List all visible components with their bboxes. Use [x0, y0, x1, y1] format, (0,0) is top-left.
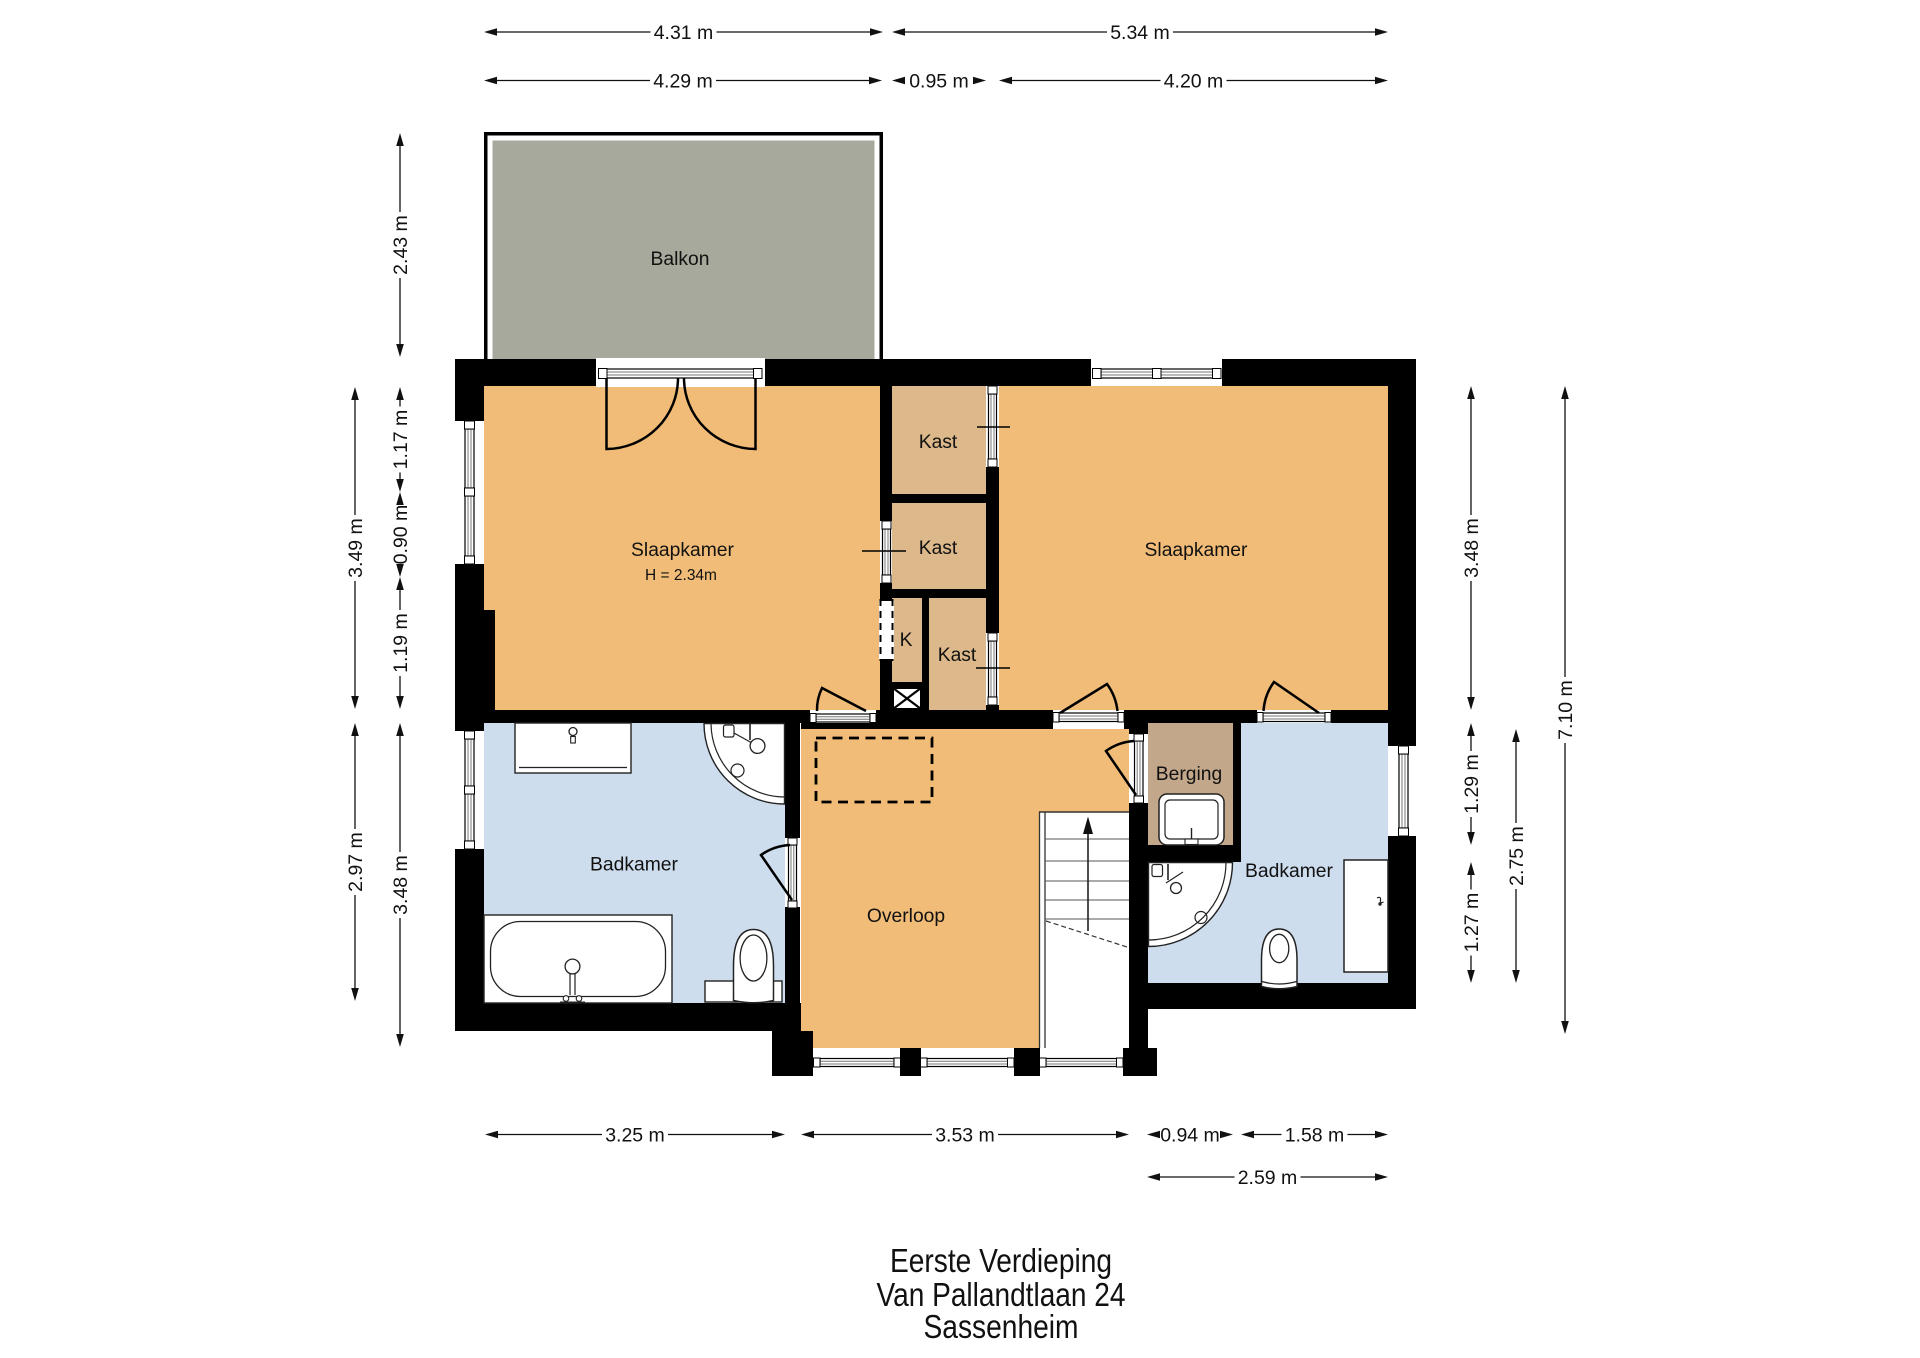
svg-text:2.43 m: 2.43 m [390, 215, 412, 275]
svg-text:3.53 m: 3.53 m [935, 1125, 995, 1147]
svg-text:Kast: Kast [919, 538, 958, 559]
svg-text:0.90 m: 0.90 m [390, 505, 412, 565]
svg-text:1.27 m: 1.27 m [1461, 893, 1483, 953]
svg-text:Balkon: Balkon [651, 249, 710, 270]
svg-text:Sassenheim: Sassenheim [924, 1308, 1079, 1345]
svg-text:1.58 m: 1.58 m [1285, 1125, 1345, 1147]
svg-text:0.94 m: 0.94 m [1160, 1125, 1220, 1147]
svg-text:Kast: Kast [938, 645, 977, 666]
svg-text:Slaapkamer: Slaapkamer [1145, 540, 1248, 561]
svg-text:Berging: Berging [1156, 764, 1222, 785]
svg-text:2.59 m: 2.59 m [1238, 1167, 1298, 1189]
svg-text:3.48 m: 3.48 m [1461, 518, 1483, 578]
svg-text:Overloop: Overloop [867, 906, 945, 927]
svg-text:4.31 m: 4.31 m [654, 22, 714, 44]
svg-text:Badkamer: Badkamer [590, 855, 678, 876]
svg-text:H = 2.34m: H = 2.34m [645, 567, 717, 584]
svg-text:2.97 m: 2.97 m [345, 832, 367, 892]
svg-text:Slaapkamer: Slaapkamer [631, 540, 734, 561]
svg-text:7.10 m: 7.10 m [1555, 680, 1577, 740]
svg-text:K: K [900, 630, 913, 651]
svg-text:3.49 m: 3.49 m [345, 518, 367, 578]
svg-text:3.25 m: 3.25 m [605, 1125, 665, 1147]
svg-text:3.48 m: 3.48 m [390, 855, 412, 915]
svg-text:5.34 m: 5.34 m [1110, 22, 1170, 44]
svg-text:Eerste Verdieping: Eerste Verdieping [890, 1242, 1112, 1279]
svg-text:1.19 m: 1.19 m [390, 613, 412, 673]
svg-text:Kast: Kast [919, 432, 958, 453]
svg-text:Badkamer: Badkamer [1245, 861, 1333, 882]
svg-text:0.95 m: 0.95 m [909, 71, 969, 93]
svg-text:1.17 m: 1.17 m [390, 410, 412, 470]
svg-text:1.29 m: 1.29 m [1461, 754, 1483, 814]
svg-text:4.20 m: 4.20 m [1164, 71, 1224, 93]
svg-text:2.75 m: 2.75 m [1506, 826, 1528, 886]
svg-text:4.29 m: 4.29 m [653, 71, 713, 93]
